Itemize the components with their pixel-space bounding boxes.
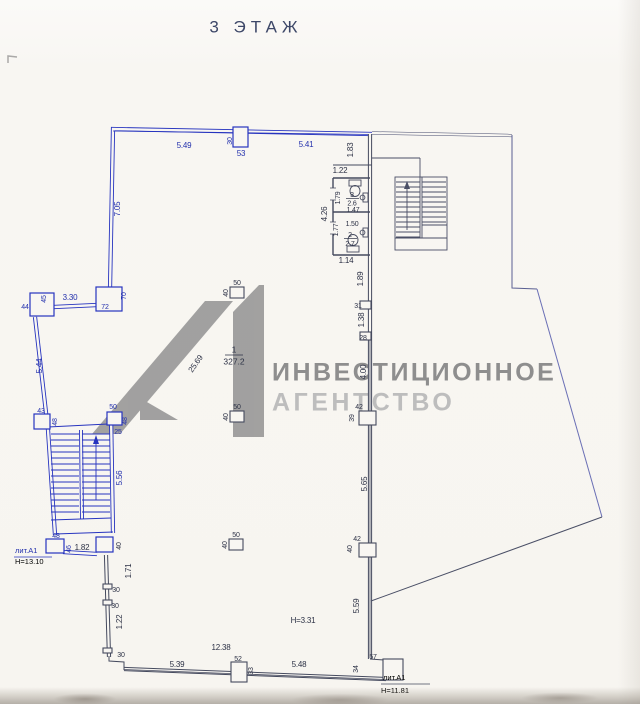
dim-rw2: 31: [354, 303, 362, 310]
dim-rw6: 5.65: [360, 476, 369, 492]
dim-colB-w: 45: [41, 295, 48, 303]
dim-top-col-d: 53: [237, 149, 246, 158]
dim-bot-left: 5.39: [170, 660, 186, 669]
note-lit-right: лит.А1: [383, 673, 405, 682]
dim-wc3-w: 1.47: [347, 207, 360, 214]
dim-wc2-w: 1.50: [346, 221, 359, 228]
dim-bot-total: 12.38: [211, 643, 231, 652]
dim-wc3-h: 1.79: [335, 191, 342, 204]
room-wc2-number: 2: [348, 232, 352, 239]
note-lit-left: лит.А1: [15, 546, 37, 555]
dim-room-diag: 25.69: [187, 353, 206, 374]
dim-lw4: 1.22: [115, 614, 124, 630]
dim-pillar1-d: 40: [223, 289, 230, 297]
dim-pillar1-w: 50: [233, 280, 241, 287]
room-wc2-area: 2.7: [345, 241, 354, 248]
note-lit-left-h: Н=13.10: [15, 557, 44, 566]
floor-plan-canvas: ИНВЕСТИЦИОННОЕ АГЕНТСТВО: [0, 0, 640, 704]
dim-top-v: 1.83: [346, 142, 355, 158]
scan-artifact-mark: [8, 56, 17, 63]
note-lit-right-h: Н=11.81: [381, 686, 409, 695]
dim-wc-h: 4.26: [320, 206, 329, 222]
room-wc3-number: 3: [350, 192, 354, 199]
dim-lw5: 30: [117, 652, 125, 659]
dim-top-span-right: 5.41: [299, 140, 315, 149]
room-main-area: 327.2: [223, 356, 245, 366]
dim-rw7: 5.59: [352, 598, 361, 614]
page-title: 3 ЭТАЖ: [209, 17, 302, 36]
dim-colG-d: 40: [347, 545, 354, 553]
dim-lw2: 30: [112, 587, 120, 594]
room-main-number: 1: [232, 344, 237, 354]
room-label-wc3: 3 2.6: [346, 192, 359, 208]
dim-colE-d: 33: [248, 667, 255, 675]
dim-lw1: 1.71: [124, 563, 133, 579]
dim-left-slant: 5.44: [35, 358, 44, 374]
dim-lw3: 30: [111, 603, 119, 610]
dim-stair-top-d: 48: [122, 417, 129, 425]
dim-colA-d: 70: [121, 292, 128, 300]
dim-colF-w: 42: [355, 404, 363, 411]
dim-stair-bot-d: 46: [66, 545, 73, 553]
room-wc3-area: 2.6: [347, 200, 356, 207]
dim-stair-h: 5.56: [115, 470, 124, 486]
dim-colC-d: 48: [52, 418, 59, 426]
dim-rw3: 1.38: [357, 312, 366, 328]
dim-left-span: 3.30: [63, 293, 79, 302]
dim-colC-w: 43: [37, 408, 45, 415]
scanned-floor-plan-page: ИНВЕСТИЦИОННОЕ АГЕНТСТВО: [0, 0, 640, 704]
dim-stair-top-o: 25: [114, 429, 122, 436]
dim-colE-w: 52: [234, 656, 242, 663]
dim-pillar3-d: 40: [222, 541, 229, 549]
staircase-right: [372, 158, 447, 250]
dim-rw4: 28: [359, 335, 367, 342]
dim-vest-w: 1.82: [75, 543, 91, 552]
dim-colA-w: 72: [101, 304, 109, 311]
dim-pillar2-d: 40: [223, 413, 230, 421]
dim-rw5: 4.00: [359, 364, 368, 380]
dim-corner-d: 34: [353, 665, 360, 673]
dim-colB-d: 44: [21, 304, 29, 311]
dim-top-span-left: 5.49: [177, 141, 193, 150]
dim-colG-w: 42: [353, 536, 361, 543]
dim-colD-d: 40: [116, 542, 123, 550]
dim-pillar2-w: 50: [233, 404, 241, 411]
dim-pillar3-w: 50: [232, 532, 240, 539]
dim-top-col-w: 30: [227, 137, 234, 145]
dim-wc-above: 1.22: [333, 166, 349, 175]
dim-bot-right: 5.48: [292, 660, 308, 669]
dim-rw1: 1.89: [356, 271, 365, 287]
dim-stair-bot-w: 48: [52, 533, 60, 540]
dim-colF-d: 39: [349, 414, 356, 422]
dim-corner-w: 57: [369, 654, 377, 661]
watermark-line1: ИНВЕСТИЦИОННОЕ: [272, 359, 556, 387]
dim-wc2-h: 1.77: [333, 223, 340, 236]
dim-wc-below: 1.14: [339, 256, 355, 265]
walls-blue: [35, 129, 372, 554]
dim-stair-top-w: 50: [109, 404, 117, 411]
dim-left-wall: 7.05: [113, 201, 122, 217]
watermark-text: ИНВЕСТИЦИОННОЕ АГЕНТСТВО: [272, 359, 556, 417]
note-height-main: Н=3.31: [291, 616, 317, 625]
